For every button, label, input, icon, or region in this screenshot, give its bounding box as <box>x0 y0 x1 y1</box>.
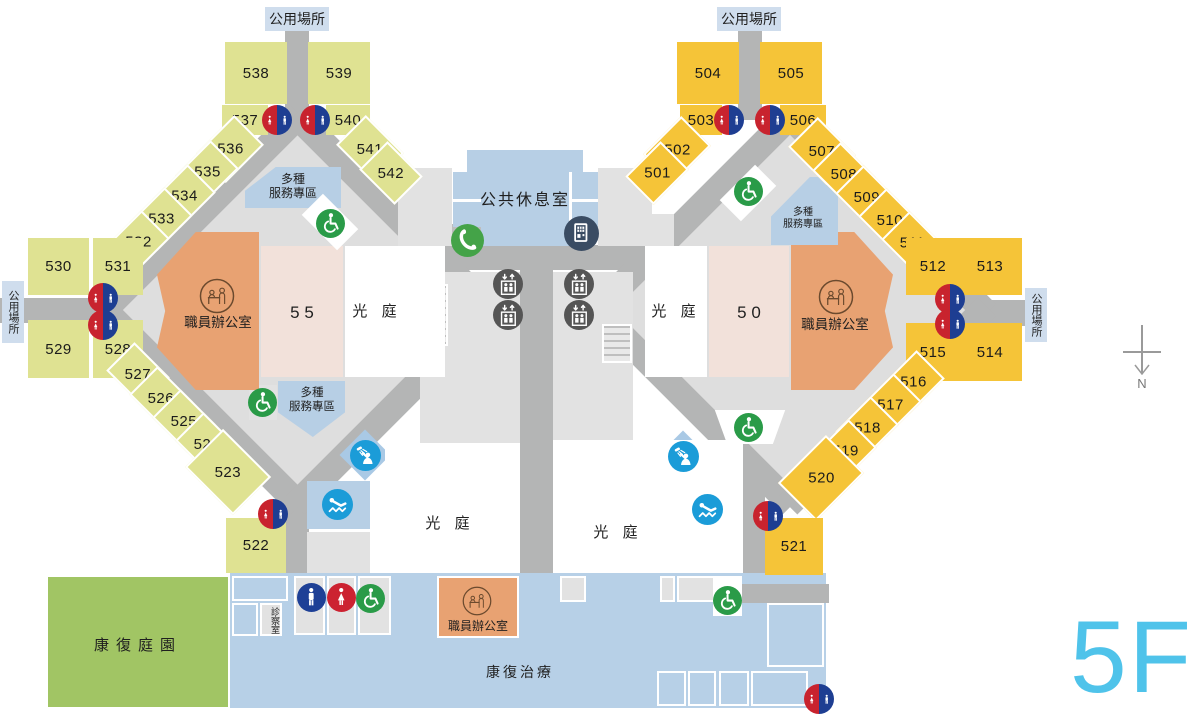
lounge-room <box>453 172 481 199</box>
reception-desk-icon <box>462 586 492 616</box>
corridor <box>520 263 553 576</box>
accessible-restroom-icon <box>713 586 742 615</box>
room-530: 530 <box>28 238 89 295</box>
restroom-icon <box>262 105 292 135</box>
room-number: 539 <box>326 65 353 82</box>
compass-n-label: N <box>1133 376 1151 392</box>
accessible-restroom-icon <box>734 177 763 206</box>
rehab-garden <box>48 577 228 707</box>
light-court <box>385 443 520 575</box>
central-room-block <box>640 214 674 246</box>
room-513: 513 <box>958 238 1022 295</box>
room-number: 530 <box>45 258 72 275</box>
vending-machine-icon <box>564 216 599 251</box>
restroom-icon <box>755 105 785 135</box>
room-number: 505 <box>778 65 805 82</box>
accessible-restroom-icon <box>248 388 277 417</box>
room-number: 520 <box>808 470 835 487</box>
restroom-icon <box>935 309 965 339</box>
reception-desk-icon <box>199 278 235 314</box>
room-number: 521 <box>781 538 808 555</box>
therapy-room <box>657 671 686 706</box>
room-number: 501 <box>644 165 671 182</box>
therapy-room <box>767 603 824 667</box>
therapy-room <box>688 671 716 706</box>
room-538: 538 <box>225 42 287 104</box>
room-number: 538 <box>243 65 270 82</box>
restroom-icon <box>804 684 834 714</box>
restroom-icon <box>300 105 330 135</box>
elevator-icon <box>493 300 523 330</box>
therapy-room <box>677 576 715 602</box>
restroom-icon <box>88 310 118 340</box>
lounge-room <box>572 172 598 199</box>
accessible-restroom-icon <box>356 584 385 613</box>
room-number: 514 <box>977 344 1004 361</box>
room-539: 539 <box>308 42 370 104</box>
room-505: 505 <box>760 42 822 104</box>
accessible-restroom-icon <box>734 413 763 442</box>
room-504: 504 <box>677 42 739 104</box>
corridor <box>741 584 826 603</box>
central-room-block <box>307 532 370 576</box>
lounge-area <box>467 150 583 172</box>
room-number: 522 <box>243 537 270 554</box>
restroom-icon <box>88 283 118 313</box>
compass-arrow-icon <box>1134 364 1150 375</box>
light-court <box>645 246 707 377</box>
light-court <box>345 246 445 377</box>
therapy-room <box>232 603 258 636</box>
public-area-label: 公用場所 <box>1025 288 1047 342</box>
room-number: 513 <box>977 258 1004 275</box>
shower-icon <box>350 440 381 471</box>
room-number: 523 <box>215 464 242 481</box>
therapy-room <box>751 671 808 706</box>
elevator-icon <box>493 269 523 299</box>
unit-55 <box>261 246 343 377</box>
mens-room-icon <box>297 583 326 612</box>
room-number: 542 <box>378 165 405 182</box>
room-number: 531 <box>105 258 132 275</box>
therapy-room <box>719 671 749 706</box>
room-529: 529 <box>28 320 89 378</box>
room-number: 529 <box>45 341 72 358</box>
floor-plan-5f: 5385395375405415425365355345335325305315… <box>0 0 1200 722</box>
therapy-room <box>560 576 586 602</box>
public-area-label: 公用場所 <box>717 7 781 31</box>
lounge-area <box>481 170 569 246</box>
restroom-icon <box>753 501 783 531</box>
elevator-icon <box>564 269 594 299</box>
accessible-restroom-icon <box>316 209 345 238</box>
therapy-room <box>232 576 288 601</box>
shower-icon <box>668 441 699 472</box>
public-phone-icon <box>451 224 484 257</box>
rest-area-icon <box>322 489 353 520</box>
public-area-label: 公用場所 <box>265 7 329 31</box>
therapy-room <box>660 576 675 602</box>
room-514: 514 <box>958 323 1022 381</box>
room-number: 512 <box>920 258 947 275</box>
floor-tag: 5F <box>1070 606 1200 708</box>
reception-desk-icon <box>818 279 854 315</box>
rest-area-icon <box>692 494 723 525</box>
womens-room-icon <box>327 583 356 612</box>
restroom-icon <box>714 105 744 135</box>
public-area-label: 公用場所 <box>2 281 24 343</box>
stairs <box>602 324 632 363</box>
unit-50 <box>709 246 789 377</box>
elevator-icon <box>564 300 594 330</box>
exam-room <box>260 603 282 636</box>
restroom-icon <box>258 499 288 529</box>
room-number: 504 <box>695 65 722 82</box>
